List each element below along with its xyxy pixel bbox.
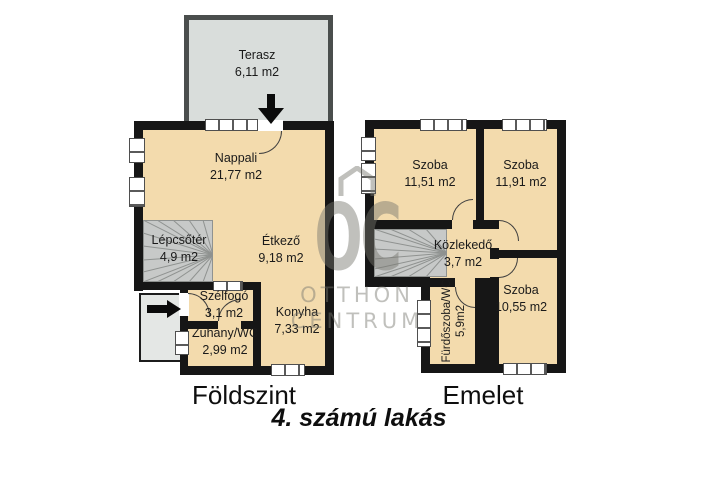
window (361, 163, 376, 194)
wall-segment (180, 366, 334, 375)
window (271, 364, 305, 376)
room-label-furdoszoba: Fürdőszoba/WC5,9m2 (440, 279, 468, 362)
window (175, 331, 189, 355)
window (503, 363, 547, 375)
main-entrance-arrow-icon (147, 300, 181, 318)
window (205, 119, 258, 131)
room-label-szelfogo: Szélfogó3,1 m2 (200, 288, 249, 322)
upper-floor-caption: Emelet (443, 380, 524, 411)
room-label-szoba-1: Szoba11,51 m2 (404, 157, 455, 191)
room-label-terasz: Terasz6,11 m2 (235, 47, 279, 81)
wall-segment (557, 120, 566, 373)
room-label-konyha: Konyha7,33 m2 (274, 304, 319, 338)
room-label-kozlekedo: Közlekedő3,7 m2 (434, 237, 492, 271)
room-label-lepcsoter: Lépcsőtér4,9 m2 (152, 232, 207, 266)
window (417, 300, 431, 347)
floorplan-canvas: Terasz6,11 m2 Nappali21,77 m2 Lépcsőtér4… (0, 0, 706, 500)
window (502, 119, 547, 131)
terrace-entry-arrow-icon (258, 94, 284, 124)
window (420, 119, 467, 131)
room-label-nappali: Nappali21,77 m2 (210, 150, 262, 184)
room-label-zuhany-wc: Zuhany/WC2,99 m2 (192, 325, 258, 359)
window (129, 177, 145, 207)
window (129, 138, 145, 163)
wall-segment (490, 250, 566, 258)
wall-segment (365, 220, 452, 229)
window (361, 137, 376, 161)
room-label-etkezo: Étkező9,18 m2 (258, 233, 303, 267)
wall-segment (325, 121, 334, 375)
wall-segment (473, 220, 499, 229)
plan-title: 4. számú lakás (271, 404, 446, 433)
wall-segment (476, 120, 484, 229)
room-label-szoba-2: Szoba11,91 m2 (495, 157, 546, 191)
room-label-szoba-3: Szoba10,55 m2 (495, 282, 547, 316)
